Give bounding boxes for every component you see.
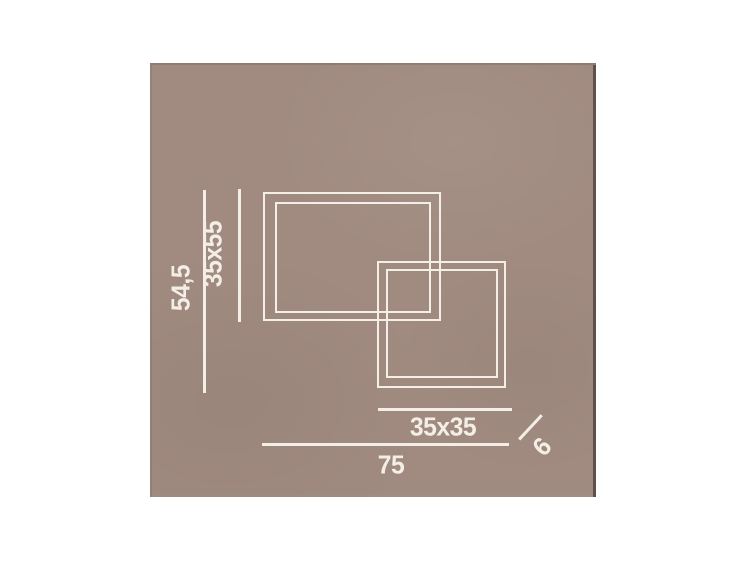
small-frame-size-label: 35x35 — [410, 412, 476, 443]
large-frame-height-dimension-line — [238, 189, 241, 322]
page: 54,5 35x55 35x35 75 6 — [0, 0, 748, 561]
frame-depth-label: 6 — [526, 432, 558, 463]
large-frame-size-label: 35x55 — [198, 221, 229, 287]
total-width-dimension-line — [262, 443, 509, 446]
total-width-label: 75 — [378, 450, 405, 481]
small-frame-inner-line — [386, 269, 498, 378]
total-height-label: 54,5 — [166, 265, 197, 311]
diagram-panel: 54,5 35x55 35x35 75 6 — [150, 63, 596, 497]
small-frame-width-dimension-line — [378, 408, 512, 411]
